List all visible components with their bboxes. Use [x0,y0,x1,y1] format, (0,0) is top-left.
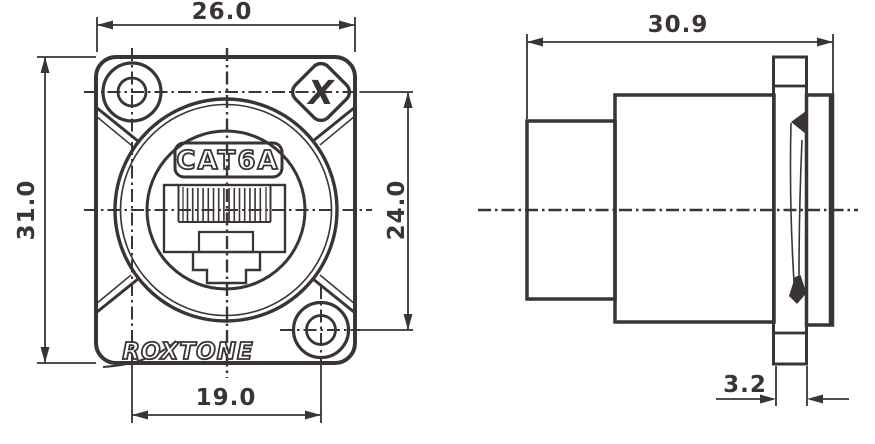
retaining-spring [789,111,807,304]
main-body [615,95,774,322]
svg-text:19.0: 19.0 [196,385,257,411]
brand-logo-text: ROXTONE [122,339,253,365]
engineering-drawing: X CAT6A ROXTONE [0,0,875,444]
svg-text:26.0: 26.0 [192,0,253,25]
dim-flange-thickness: 3.2 [716,366,849,406]
dim-overall-height: 31.0 [14,57,96,363]
dim-overall-width: 26.0 [97,0,355,52]
dim-overall-depth: 30.9 [527,12,833,119]
drawing-svg: X CAT6A ROXTONE [0,0,875,444]
rj45-jack [164,185,285,283]
svg-text:24.0: 24.0 [384,180,410,241]
rj45-contact-pins [188,188,261,221]
svg-text:30.9: 30.9 [648,12,709,38]
svg-text:31.0: 31.0 [14,180,40,241]
side-view [478,57,858,364]
category-label: CAT6A [175,143,282,177]
front-view: X CAT6A ROXTONE [84,48,372,378]
brand-logo: ROXTONE [103,339,254,367]
svg-text:3.2: 3.2 [723,372,767,398]
